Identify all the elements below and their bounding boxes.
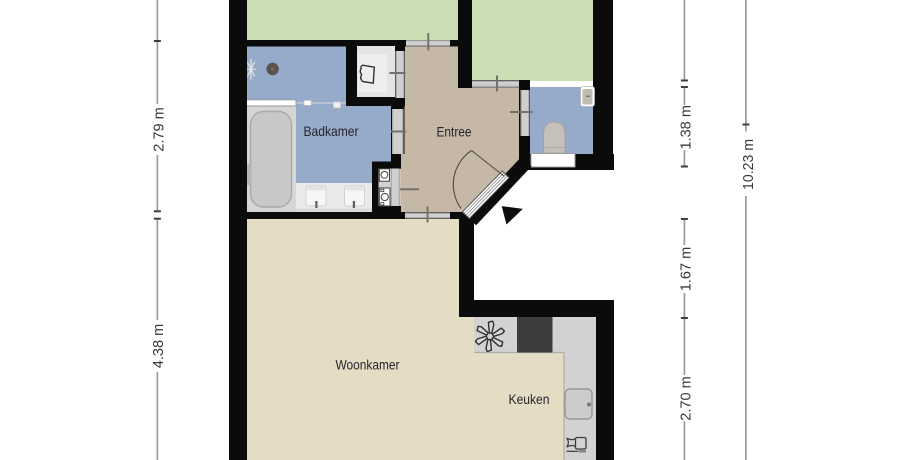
svg-text:1.67 m: 1.67 m [678,247,695,292]
svg-text:2.70 m: 2.70 m [678,376,695,421]
svg-text:2.79 m: 2.79 m [151,107,168,152]
svg-text:Keuken: Keuken [509,391,550,407]
svg-text:Woonkamer: Woonkamer [336,357,400,373]
svg-text:4.38 m: 4.38 m [150,324,167,369]
svg-text:Badkamer: Badkamer [304,123,359,139]
svg-text:1.38 m: 1.38 m [678,105,695,150]
svg-text:10.23 m: 10.23 m [740,139,757,190]
svg-text:Entree: Entree [437,124,472,140]
